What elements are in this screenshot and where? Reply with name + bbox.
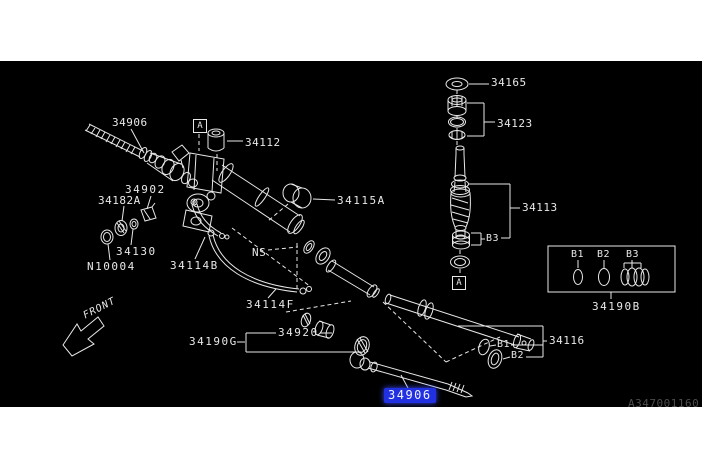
- bushing-34112-art: [208, 129, 224, 151]
- marker-a-box-top: A: [193, 119, 207, 133]
- label-34190b: 34190B: [592, 301, 641, 313]
- legend-box-art: [548, 246, 675, 292]
- diagram-canvas: 34906 A 34112 34902 34182A 34130 N10004 …: [0, 61, 702, 407]
- legend-b1-label: B1: [571, 249, 584, 261]
- label-b1-callout: B1: [497, 339, 510, 351]
- label-34190g: 34190G: [189, 336, 238, 348]
- label-34113: 34113: [522, 202, 558, 214]
- bracket-lines: [237, 103, 547, 357]
- label-34115a: 34115A: [337, 195, 386, 207]
- pipe-34114f-art: [208, 230, 312, 294]
- ns-rings-art: [302, 239, 333, 267]
- pipe-34114b-art: [191, 199, 229, 239]
- front-arrow: [63, 317, 104, 356]
- watermark-code: A347001160: [628, 397, 699, 407]
- label-34112: 34112: [245, 137, 281, 149]
- legend-b2-label: B2: [597, 249, 610, 261]
- label-34920: 34920: [278, 327, 319, 339]
- label-b3-callout: B3: [486, 233, 499, 245]
- small-parts-left-art: [101, 203, 156, 244]
- label-34906-outer: 34906: [112, 117, 148, 129]
- label-34114f: 34114F: [246, 299, 295, 311]
- marker-a-box-bottom: A: [452, 276, 466, 290]
- legend-b3-label: B3: [626, 249, 639, 261]
- diagram-line-art: [0, 61, 702, 407]
- label-34123: 34123: [497, 118, 533, 130]
- valve-housing-art: [172, 145, 224, 232]
- label-ns: NS: [252, 247, 266, 259]
- label-34114b: 34114B: [170, 260, 219, 272]
- label-34906-inner-highlighted[interactable]: 34906: [384, 388, 436, 403]
- tie-rod-outer-art: [85, 124, 198, 187]
- label-34130: 34130: [116, 246, 157, 258]
- pinion-column-art: [446, 78, 470, 268]
- label-34116: 34116: [549, 335, 585, 347]
- rack-housing-tube-art: [212, 162, 381, 299]
- parts-diagram-page: 34906 A 34112 34902 34182A 34130 N10004 …: [0, 0, 702, 468]
- label-34182a: 34182A: [98, 195, 141, 207]
- label-34165: 34165: [491, 77, 527, 89]
- label-b2-callout: B2: [511, 350, 524, 362]
- label-n10004: N10004: [87, 261, 136, 273]
